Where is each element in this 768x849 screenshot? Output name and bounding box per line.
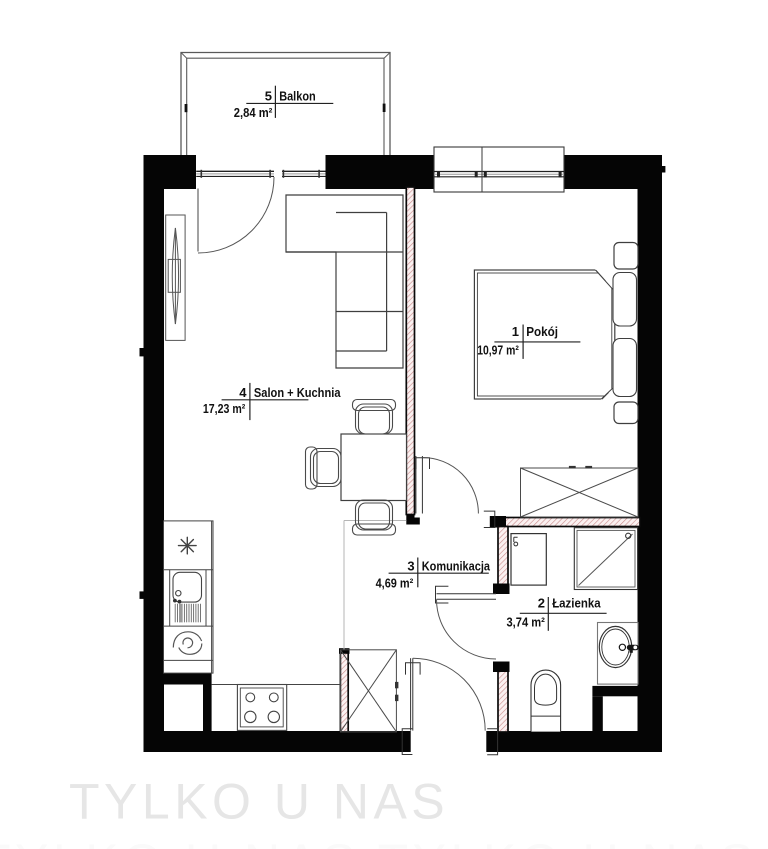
svg-text:Balkon: Balkon <box>279 88 316 103</box>
svg-text:Pokój: Pokój <box>526 324 558 339</box>
svg-text:1: 1 <box>512 324 519 339</box>
svg-text:TYLKO U NAS: TYLKO U NAS <box>69 774 449 830</box>
svg-text:5: 5 <box>265 88 272 103</box>
svg-text:3,74 m²: 3,74 m² <box>507 614 546 629</box>
svg-text:Salon + Kuchnia: Salon + Kuchnia <box>254 385 341 400</box>
svg-text:Komunikacja: Komunikacja <box>422 558 491 573</box>
svg-text:10,97 m²: 10,97 m² <box>477 342 519 357</box>
svg-text:TYLKO U NAS TYLKO U NAS: TYLKO U NAS TYLKO U NAS <box>0 834 758 849</box>
svg-text:4: 4 <box>239 385 247 400</box>
svg-text:Łazienka: Łazienka <box>552 595 601 610</box>
svg-text:2,84 m²: 2,84 m² <box>234 105 273 120</box>
svg-text:2: 2 <box>538 595 545 610</box>
svg-text:17,23 m²: 17,23 m² <box>203 401 246 416</box>
svg-text:4,69 m²: 4,69 m² <box>376 576 414 591</box>
svg-text:3: 3 <box>407 558 414 573</box>
